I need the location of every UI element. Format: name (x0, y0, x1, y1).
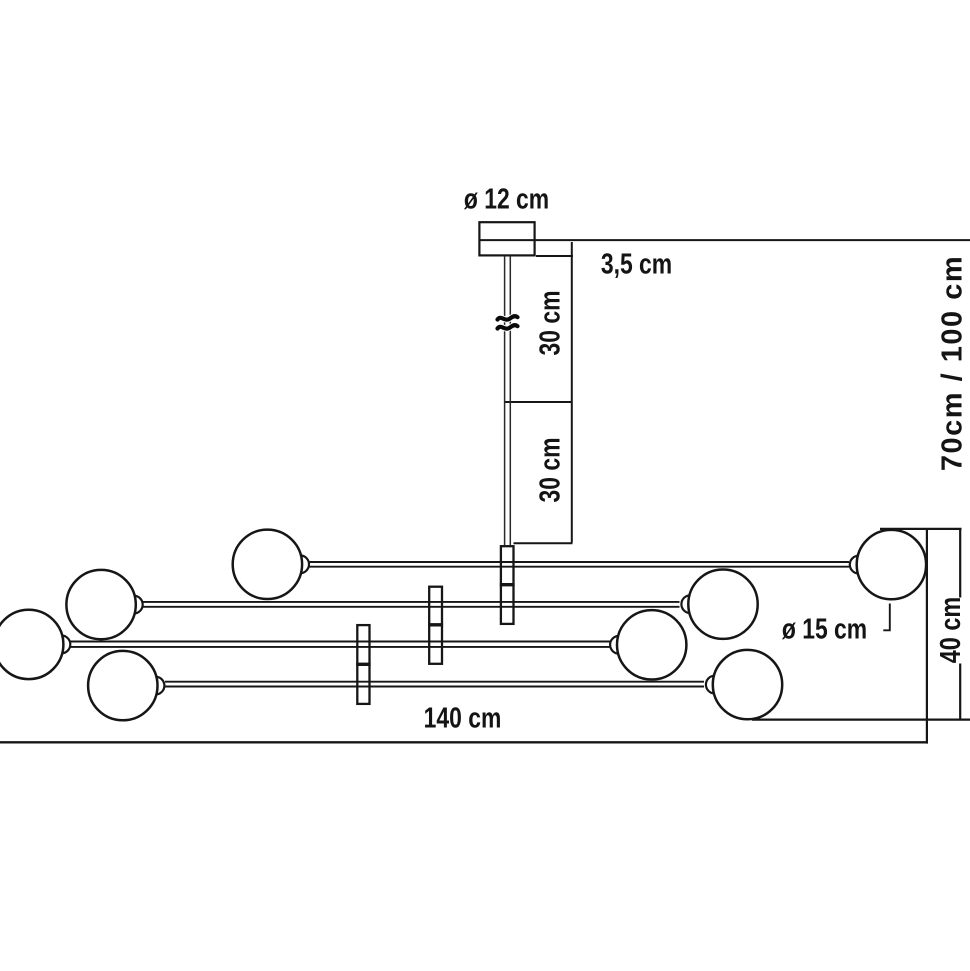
svg-text:30 cm: 30 cm (533, 438, 566, 503)
svg-text:140 cm: 140 cm (424, 701, 502, 734)
svg-text:3,5 cm: 3,5 cm (601, 247, 672, 280)
svg-text:70cm / 100 cm: 70cm / 100 cm (937, 255, 969, 471)
svg-text:ø 15 cm: ø 15 cm (782, 612, 867, 645)
svg-text:40 cm: 40 cm (933, 597, 966, 664)
svg-text:30 cm: 30 cm (533, 291, 566, 356)
svg-text:ø 12 cm: ø 12 cm (464, 182, 549, 215)
